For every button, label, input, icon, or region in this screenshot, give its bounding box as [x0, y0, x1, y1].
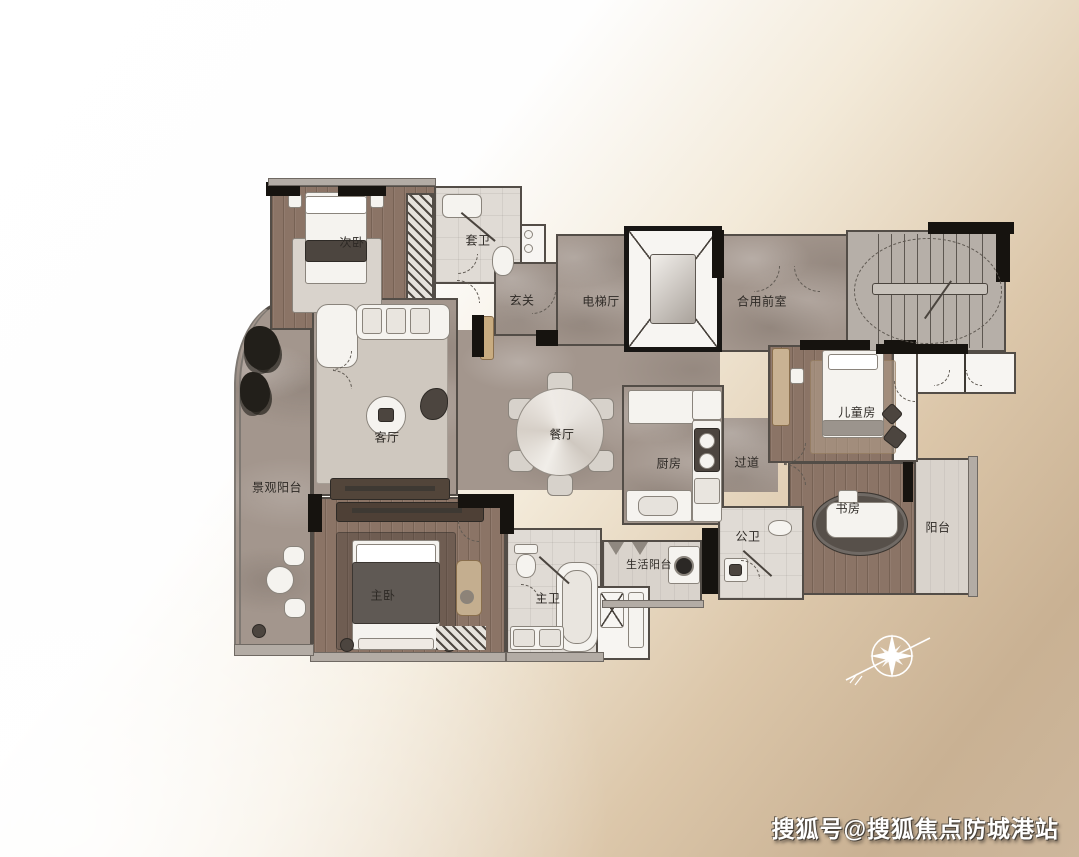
- plant-icon: [244, 326, 280, 370]
- sofa-cushion: [410, 308, 430, 334]
- stair-walkline: [854, 238, 1002, 344]
- room-label-utility-balcony: 生活阳台: [626, 556, 672, 572]
- vanity-basin: [729, 564, 742, 576]
- compass-icon: [838, 612, 938, 692]
- wall-segment: [712, 230, 724, 278]
- sink-basin: [539, 629, 561, 647]
- wall-segment: [472, 315, 484, 357]
- sofa-cushion: [362, 308, 382, 334]
- room-label-living-room: 客厅: [374, 429, 399, 446]
- desk-icon: [772, 348, 790, 426]
- wall-segment: [702, 528, 718, 594]
- kitchen-sink-icon: [638, 496, 678, 516]
- room-label-second-bedroom: 次卧: [339, 234, 364, 251]
- toilet-icon: [768, 520, 792, 536]
- washer-hookup-icon: [524, 244, 533, 253]
- coffee-table-tray: [378, 408, 394, 422]
- room-label-ensuite-bath: 套卫: [465, 232, 490, 249]
- room-label-study: 书房: [835, 500, 860, 517]
- dresser-icon: [456, 560, 482, 616]
- room-label-landscape-balcony: 景观阳台: [252, 479, 302, 496]
- wardrobe-second-bedroom: [406, 193, 434, 305]
- wall-segment: [800, 340, 870, 350]
- sink-basin: [513, 629, 535, 647]
- wall-segment: [903, 462, 913, 502]
- wall-divider: [964, 354, 966, 392]
- tv-icon: [345, 486, 435, 491]
- dining-chair-icon: [547, 474, 573, 496]
- room-label-shared-front-room: 合用前室: [737, 293, 787, 310]
- room-label-public-bath: 公卫: [735, 528, 760, 545]
- room-elevator-hall: [556, 234, 626, 346]
- stool-icon: [340, 638, 354, 652]
- watermark-text: 搜狐号@搜狐焦点防城港站: [772, 810, 1059, 844]
- ac-unit-icon: [600, 592, 624, 628]
- wall-segment: [536, 330, 558, 346]
- washer-drum: [674, 556, 694, 576]
- window-sill: [268, 178, 436, 186]
- window-sill: [602, 600, 704, 608]
- room-public-bath: [718, 506, 804, 600]
- stool-icon: [460, 590, 474, 604]
- outdoor-table-icon: [266, 566, 294, 594]
- room-label-elevator-hall: 电梯厅: [582, 293, 620, 310]
- room-label-foyer: 玄关: [509, 292, 534, 309]
- elevator-car-icon: [650, 254, 696, 324]
- fridge-icon: [692, 390, 722, 420]
- plant-icon: [240, 372, 270, 412]
- sofa-cushion: [386, 308, 406, 334]
- wall-segment: [500, 498, 514, 534]
- nightstand-icon: [370, 194, 384, 208]
- bed-foot: [822, 420, 884, 436]
- room-label-kitchen: 厨房: [656, 455, 681, 472]
- planter-icon: [252, 624, 266, 638]
- toilet-icon: [516, 554, 536, 578]
- bed-duvet: [352, 562, 440, 624]
- wall-segment: [308, 494, 322, 532]
- window-sill: [234, 644, 314, 656]
- room-label-children-room: 儿童房: [838, 404, 876, 421]
- kitchen-counter: [628, 390, 694, 424]
- room-label-master-bedroom: 主卧: [370, 587, 395, 604]
- room-label-balcony: 阳台: [925, 519, 950, 536]
- room-label-corridor: 过道: [734, 454, 759, 471]
- nightstand-icon: [288, 194, 302, 208]
- toilet-tank: [514, 544, 538, 554]
- bed-pillows: [305, 196, 367, 214]
- kitchen-appliance-icon: [694, 478, 720, 504]
- folding-door-icon: [632, 542, 648, 555]
- bed-pillows: [828, 354, 878, 370]
- tv-icon: [352, 508, 462, 513]
- desk-chair-icon: [790, 368, 804, 384]
- room-label-dining-room: 餐厅: [549, 426, 574, 443]
- window-sill: [968, 456, 978, 597]
- window-sill: [506, 652, 604, 662]
- washer-hookup-icon: [524, 230, 533, 239]
- closet-icon: [436, 626, 486, 650]
- room-label-master-bath: 主卫: [535, 590, 560, 607]
- window-sill: [310, 652, 506, 662]
- outdoor-chair-icon: [283, 546, 305, 566]
- folding-door-icon: [608, 542, 624, 555]
- bed-bench-icon: [358, 638, 434, 650]
- bed-pillows: [356, 544, 436, 564]
- floor-plan-stage: 次卧 套卫 玄关 电梯厅 合用前室 客厅 餐厅 厨房 过道 儿童房 书房 阳台 …: [0, 0, 1079, 857]
- stove-burner: [699, 453, 715, 469]
- stove-burner: [699, 433, 715, 449]
- toilet-icon: [492, 246, 514, 276]
- outdoor-chair-icon: [284, 598, 306, 618]
